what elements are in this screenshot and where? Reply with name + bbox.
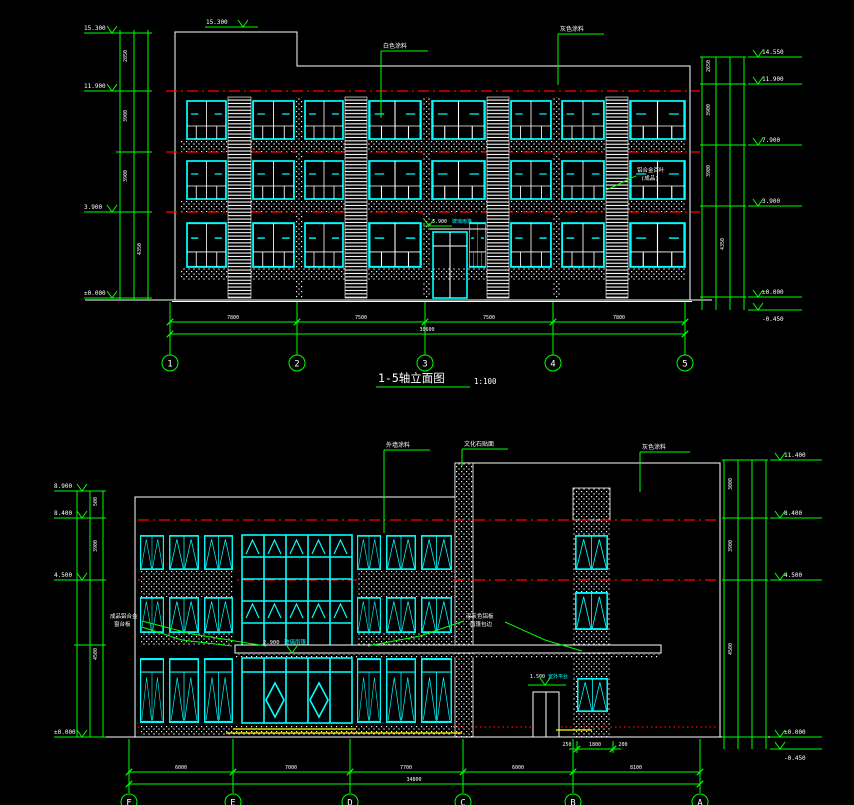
dim-text: 1800 <box>589 742 601 748</box>
dim-text: 3900 <box>123 110 129 122</box>
curtain-wall <box>242 535 352 647</box>
dim-text: 7000 <box>285 765 297 771</box>
dimension-row: 7800 7500 7500 7800 30600 <box>167 315 688 337</box>
note-text: 灰色涂料 <box>642 443 666 451</box>
dim-text: 4500 <box>728 643 734 655</box>
entrance-canopy-level: 3.900 玻璃雨篷 <box>423 218 472 226</box>
note-text: 雨篷包边 <box>470 620 493 628</box>
level-markers-right: 14.550 11.900 7.900 3.900 ±0.000 -0.450 <box>748 49 802 323</box>
level-text: 14.550 <box>762 49 784 56</box>
grid-bubble-label: 3 <box>422 360 427 370</box>
elevation-1-5: 白色涂料 灰色涂料 铝合金百叶 (成品) 15.300 3.900 玻璃雨篷 2… <box>84 19 802 387</box>
lower-windows <box>141 659 452 722</box>
note-n3: 灰色涂料 <box>640 443 690 492</box>
level-text: 3.900 <box>762 198 780 205</box>
note-text: 白色涂料 <box>383 42 407 50</box>
dim-text: 2850 <box>123 50 129 62</box>
door-dimension: 250 1800 200 <box>562 741 627 753</box>
level-text: ±0.000 <box>84 290 106 297</box>
note-text: 灰色涂料 <box>560 25 584 33</box>
spandrel-band <box>357 570 453 597</box>
elevation-f-a: 外墙涂料 文化石贴面 灰色涂料 成品铝合金 窗台板 深灰色铝板 雨篷包边 2.9… <box>54 440 822 805</box>
dim-text: 3900 <box>706 104 712 116</box>
stone-pilaster <box>455 463 473 737</box>
level-text: 11.900 <box>84 83 106 90</box>
dimension-row: 6000 7000 7700 6000 8100 34800 <box>126 765 703 787</box>
grid-bubble-label: 1 <box>167 360 172 370</box>
dim-text: 500 <box>93 497 99 506</box>
note-text: 窗台板 <box>114 620 131 628</box>
level-text: ±0.000 <box>762 289 784 296</box>
dim-text: 6000 <box>175 765 187 771</box>
grid-bubble-label: 2 <box>294 360 299 370</box>
grid-bubble-label: E <box>230 799 235 805</box>
dim-text: 7500 <box>355 315 367 321</box>
level-text: 11.400 <box>784 452 806 459</box>
level-text: 15.300 <box>206 19 228 26</box>
grid-bubble-label: D <box>347 799 352 805</box>
dim-text: 2650 <box>706 60 712 72</box>
note-n1: 外墙涂料 <box>384 441 430 533</box>
level-markers-left: 8.900 8.400 4.500 ±0.000 <box>54 483 92 737</box>
level-text: 15.300 <box>84 25 106 32</box>
dimension-stack-left: 2850 3900 3900 4350 <box>116 30 152 300</box>
level-text: -0.450 <box>784 755 806 762</box>
note-text: 文化石贴面 <box>464 440 494 448</box>
grid-bubble-label: B <box>570 799 575 805</box>
dim-text: 7500 <box>483 315 495 321</box>
dim-text: 4350 <box>137 243 143 255</box>
door-label: 室外平台 <box>548 673 568 680</box>
door-level: 1.500 室外平台 <box>528 673 568 685</box>
level-text: -0.450 <box>762 316 784 323</box>
grid-bubble-label: F <box>126 799 131 805</box>
dim-text: 3900 <box>706 165 712 177</box>
grid-bubble-label: C <box>460 799 465 805</box>
note-text: (成品) <box>641 174 659 182</box>
dim-text: 6000 <box>512 765 524 771</box>
dim-text: 7800 <box>613 315 625 321</box>
grid-bubbles: F E D C B A <box>121 794 708 805</box>
dim-text: 200 <box>618 742 627 748</box>
dim-text: 7700 <box>400 765 412 771</box>
dim-text: 7800 <box>227 315 239 321</box>
dim-text: 30600 <box>419 327 434 333</box>
stair-windows <box>575 535 608 712</box>
entrance-glazing <box>242 658 352 723</box>
level-markers-left: 15.300 11.900 3.900 ±0.000 <box>84 25 122 298</box>
level-text: 4.500 <box>54 572 72 579</box>
canopy <box>235 645 661 658</box>
level-text: 8.900 <box>54 483 72 490</box>
dimension-stack-right: 3000 3900 4500 <box>722 460 768 749</box>
dim-text: 34800 <box>406 777 421 783</box>
dim-text: 3900 <box>93 540 99 552</box>
note-paint2: 灰色涂料 <box>558 25 604 85</box>
grid-bubble-label: 5 <box>682 360 687 370</box>
note-text: 外墙涂料 <box>386 441 410 449</box>
level-text: 4.500 <box>784 572 802 579</box>
dim-text: 4500 <box>93 648 99 660</box>
level-text: 2.900 <box>263 640 280 646</box>
note-text: 铝合金百叶 <box>637 166 665 174</box>
level-text: 3.900 <box>432 219 447 225</box>
level-text: ±0.000 <box>784 729 806 736</box>
dimension-stack-right: 2650 3900 3900 4350 <box>700 57 746 310</box>
dim-text: 250 <box>562 742 571 748</box>
side-door <box>533 692 559 737</box>
canopy-label: 玻璃雨篷 <box>284 638 307 646</box>
grid-bubble-label: A <box>697 799 703 805</box>
drawing-title: 1-5轴立面图 1:100 <box>376 371 497 387</box>
level-text: 3.900 <box>84 204 102 211</box>
dim-text: 3000 <box>728 478 734 490</box>
level-text: 1.500 <box>530 674 545 680</box>
level-text: 8.400 <box>784 510 802 517</box>
entrance-door <box>424 223 494 298</box>
parapet-level-marker: 15.300 <box>205 19 258 27</box>
level-text: ±0.000 <box>54 729 76 736</box>
dimension-stack-left: 500 3900 4500 <box>74 491 106 737</box>
note-n2: 文化石贴面 <box>462 440 508 466</box>
canopy-label: 玻璃雨篷 <box>452 218 472 225</box>
level-text: 8.400 <box>54 510 72 517</box>
note-text: 成品铝合金 <box>110 612 138 620</box>
level-text: 11.900 <box>762 76 784 83</box>
spandrel-band <box>140 570 233 597</box>
level-text: 7.900 <box>762 137 780 144</box>
title-text: 1-5轴立面图 <box>378 371 445 385</box>
title-scale: 1:100 <box>474 377 497 386</box>
dim-text: 8100 <box>630 765 642 771</box>
dim-text: 3900 <box>123 170 129 182</box>
grid-bubbles: 1 2 3 4 5 <box>162 355 693 371</box>
level-markers-right: 11.400 8.400 4.500 ±0.000 -0.450 <box>770 452 822 762</box>
sill-band <box>140 633 233 645</box>
stone-block <box>573 488 610 520</box>
dim-text: 4350 <box>720 238 726 250</box>
grid-bubble-label: 4 <box>550 360 555 370</box>
dim-text: 3900 <box>728 540 734 552</box>
note-text: 深灰色铝板 <box>466 612 494 620</box>
cad-drawing-canvas[interactable]: 白色涂料 灰色涂料 铝合金百叶 (成品) 15.300 3.900 玻璃雨篷 2… <box>0 0 854 805</box>
